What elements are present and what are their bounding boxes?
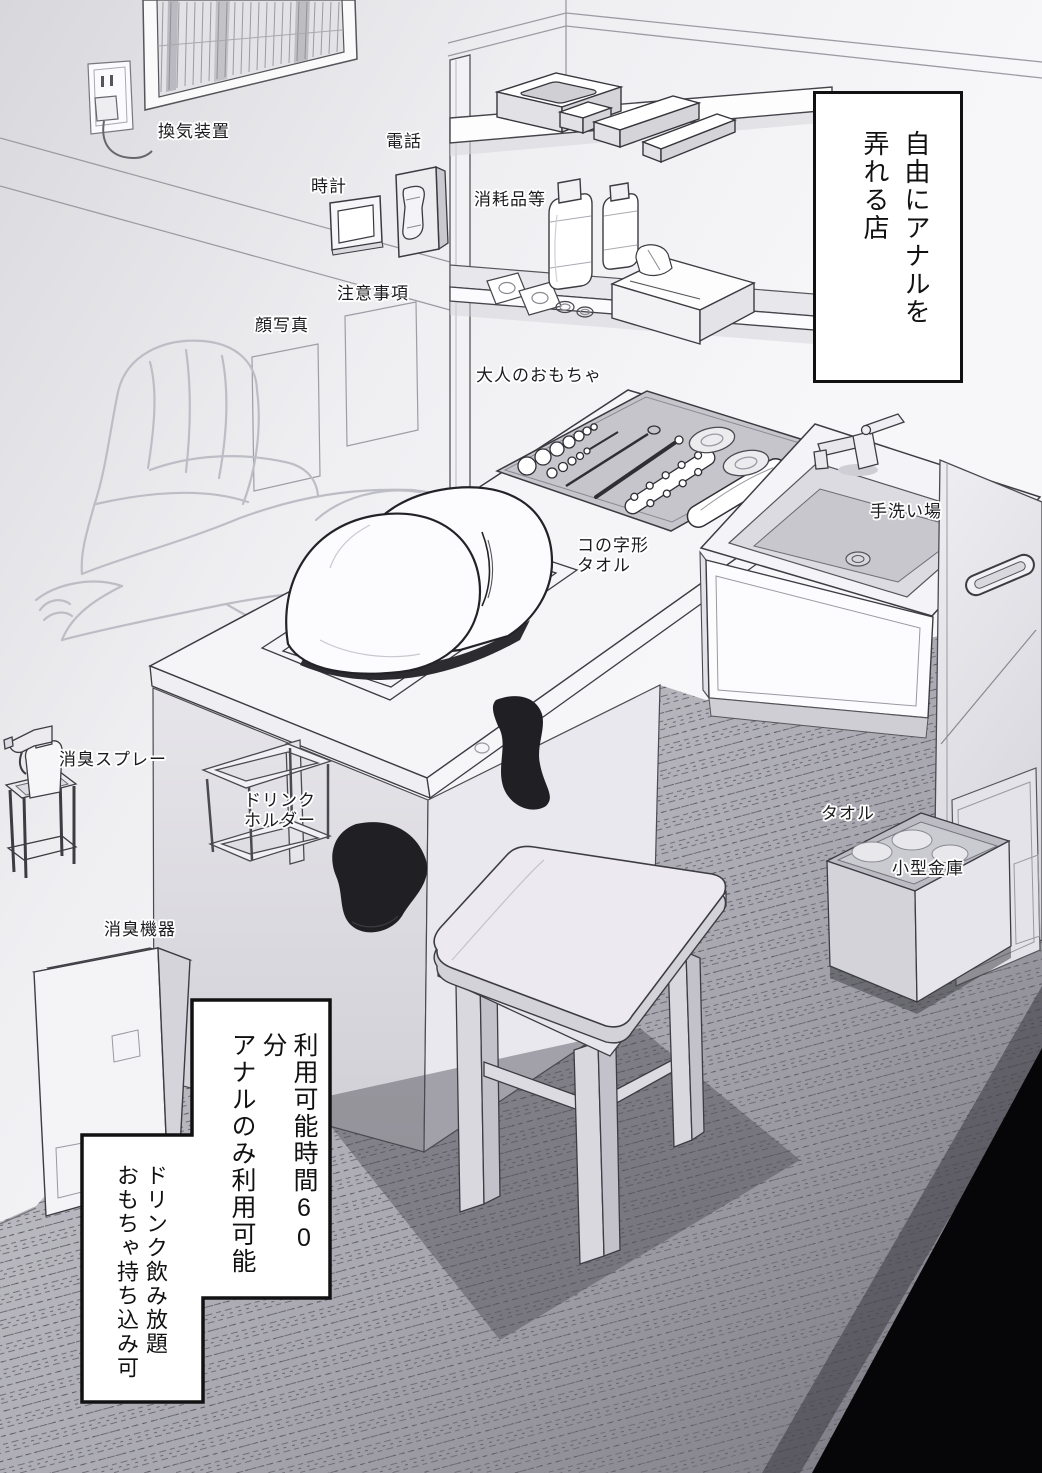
label-clock: 時計 bbox=[311, 177, 347, 197]
label-face-photo: 顔写真 bbox=[255, 316, 309, 336]
rules-sign-text-2: ドリンク飲み放題 おもちゃ持ち込み可 bbox=[112, 1164, 170, 1396]
rules-sign-text-1: 利用可能時間60分 アナルのみ利用可能 bbox=[226, 1032, 319, 1276]
label-small-safe: 小型金庫 bbox=[892, 859, 964, 879]
drain bbox=[846, 552, 870, 566]
label-adult-toys: 大人のおもちゃ bbox=[476, 366, 602, 386]
label-deodorant-spray: 消臭スプレー bbox=[59, 750, 167, 770]
label-hand-wash: 手洗い場 bbox=[870, 502, 942, 522]
wall-phone bbox=[396, 167, 448, 257]
label-ventilation: 換気装置 bbox=[158, 122, 230, 142]
label-notice: 注意事項 bbox=[337, 284, 409, 304]
label-phone: 電話 bbox=[386, 132, 422, 152]
label-deodorizer: 消臭機器 bbox=[104, 920, 176, 940]
label-u-shaped-towel: コの字形 タオル bbox=[577, 536, 649, 576]
wall-clock bbox=[330, 196, 383, 255]
label-towel: タオル bbox=[821, 804, 875, 824]
label-drink-holder: ドリンク ホルダー bbox=[244, 791, 316, 831]
room-diagram: 換気装置 電話 時計 注意事項 顔写真 消耗品等 大人のおもちゃ コの字形 タオ… bbox=[0, 0, 1042, 1473]
title-sign: 自由にアナルを 弄れる店 bbox=[813, 91, 963, 383]
label-consumables: 消耗品等 bbox=[474, 190, 546, 210]
